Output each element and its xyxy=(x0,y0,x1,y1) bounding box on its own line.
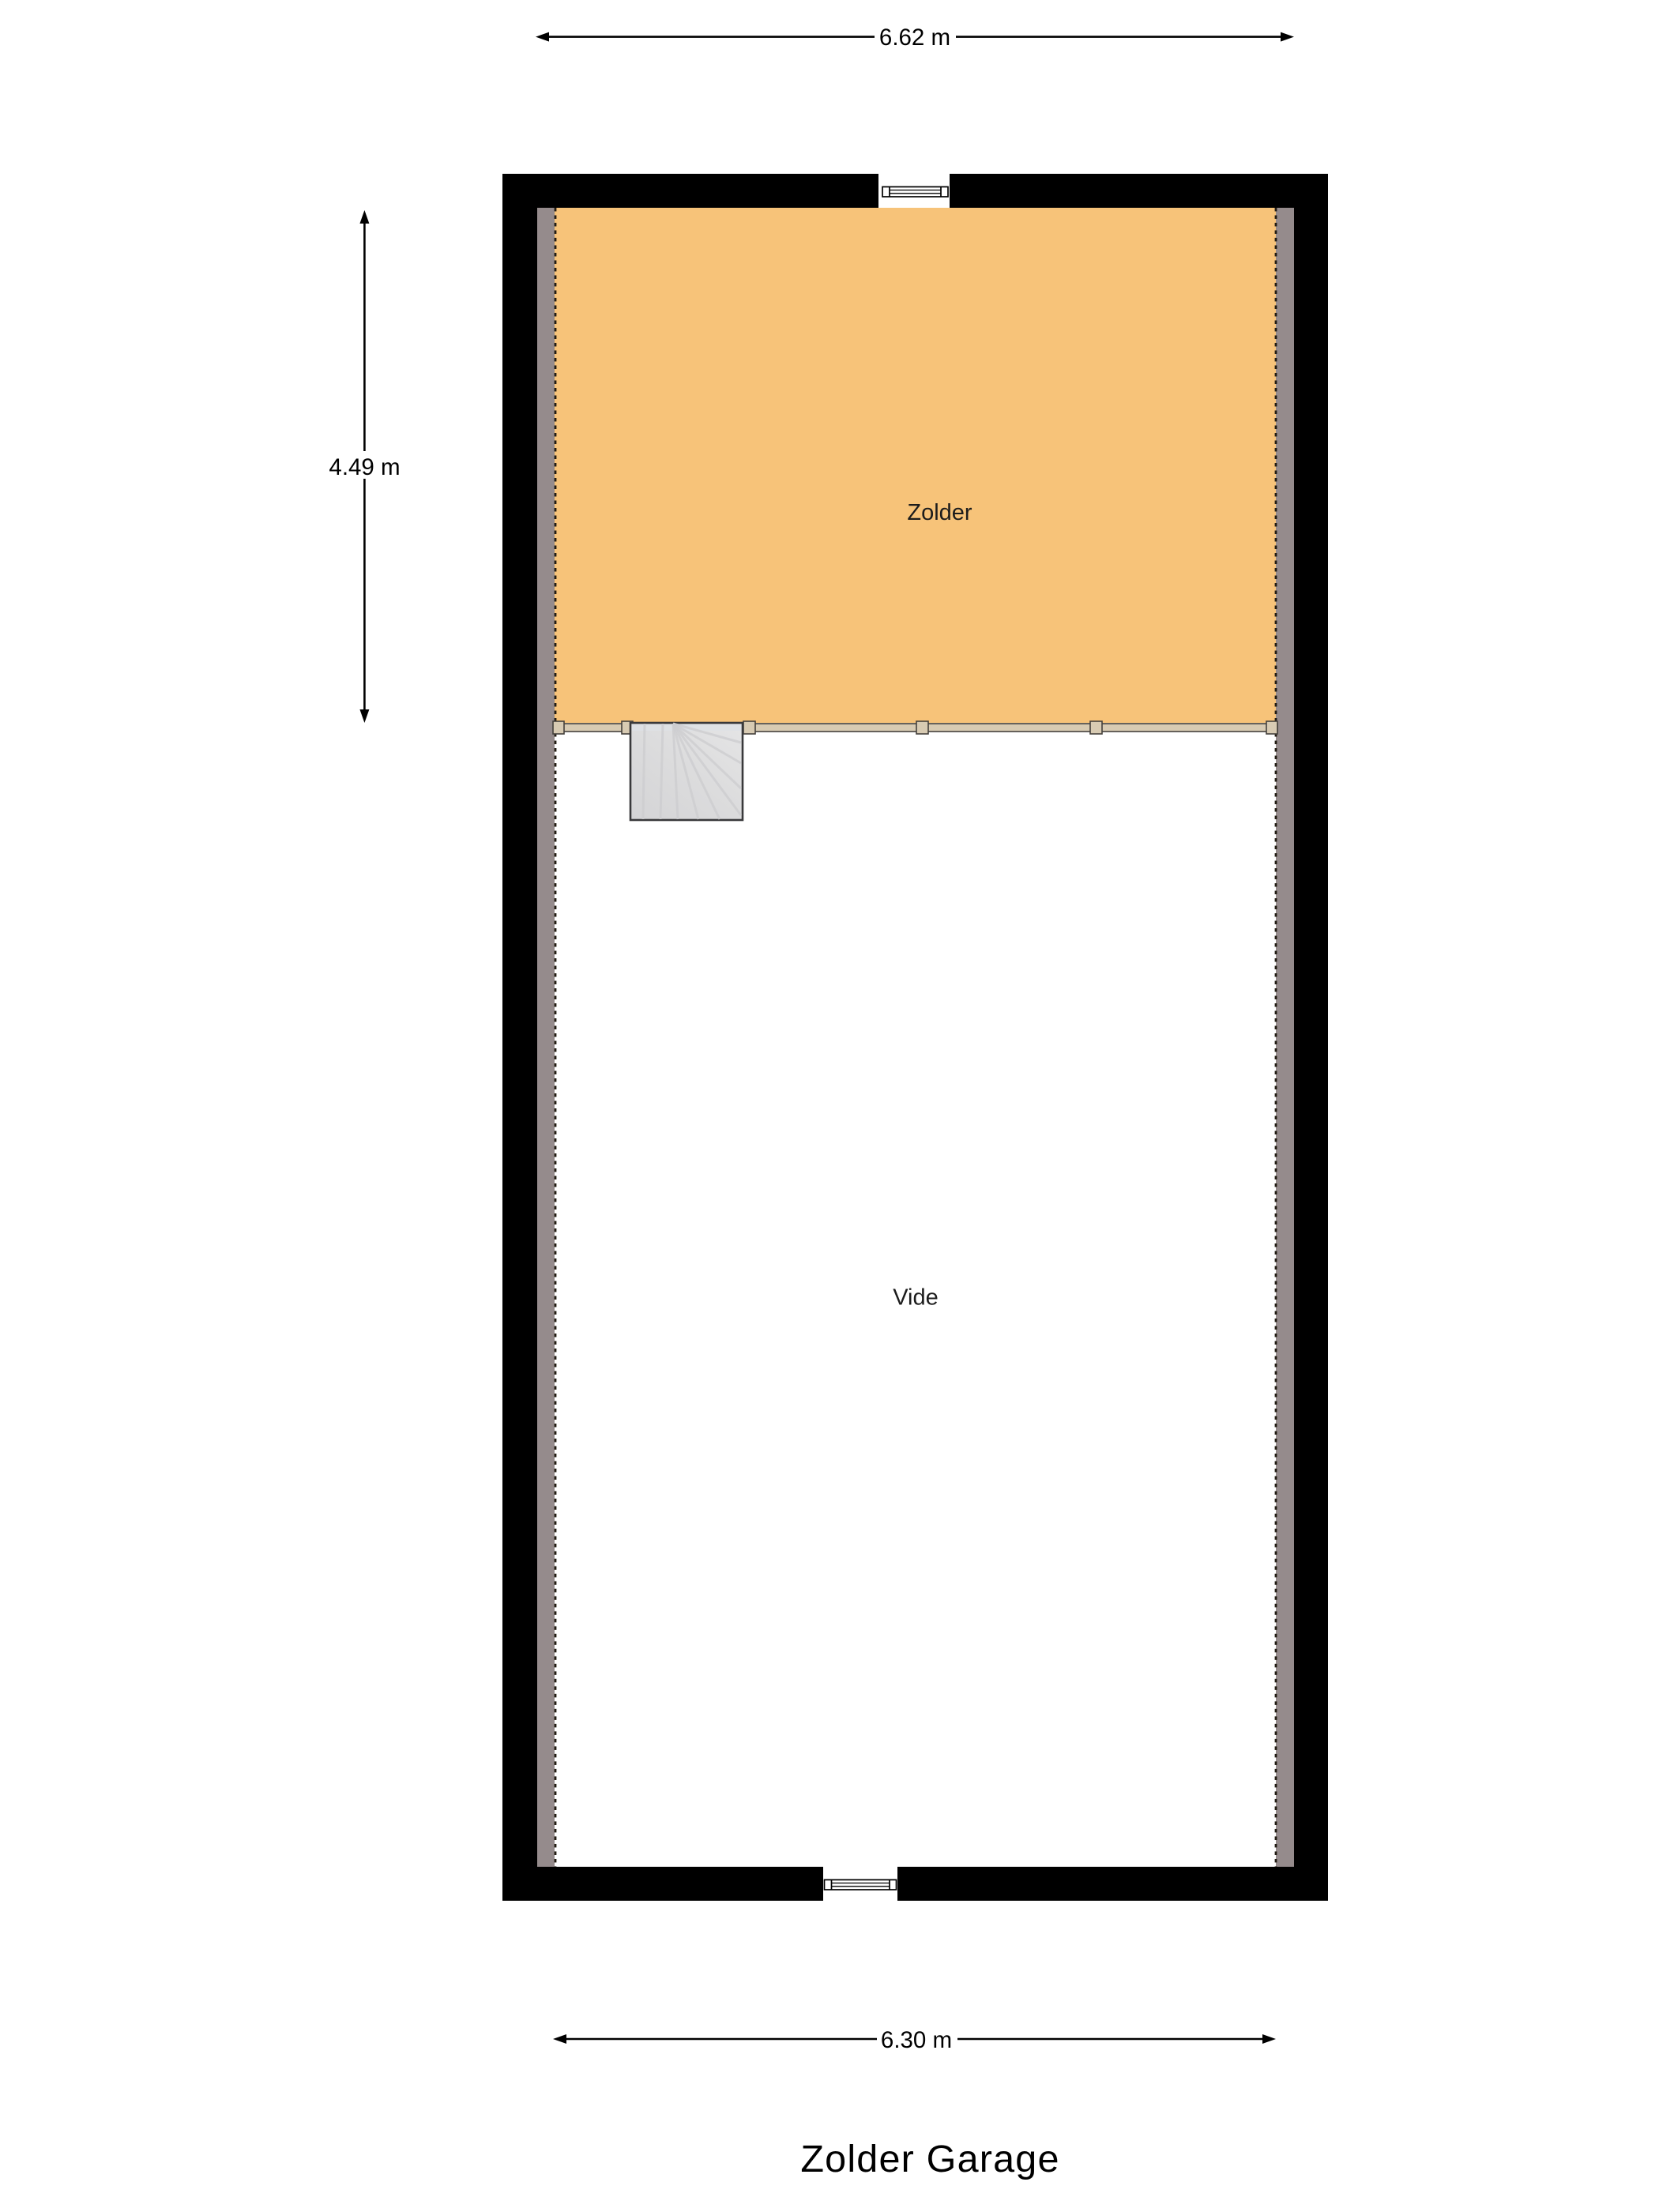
svg-text:4.49 m: 4.49 m xyxy=(329,454,400,480)
svg-text:6.30 m: 6.30 m xyxy=(881,2027,952,2053)
svg-text:6.62 m: 6.62 m xyxy=(879,24,950,51)
svg-text:Zolder: Zolder xyxy=(907,500,972,525)
svg-text:Zolder Garage: Zolder Garage xyxy=(800,2138,1059,2180)
svg-text:Vide: Vide xyxy=(893,1285,939,1311)
